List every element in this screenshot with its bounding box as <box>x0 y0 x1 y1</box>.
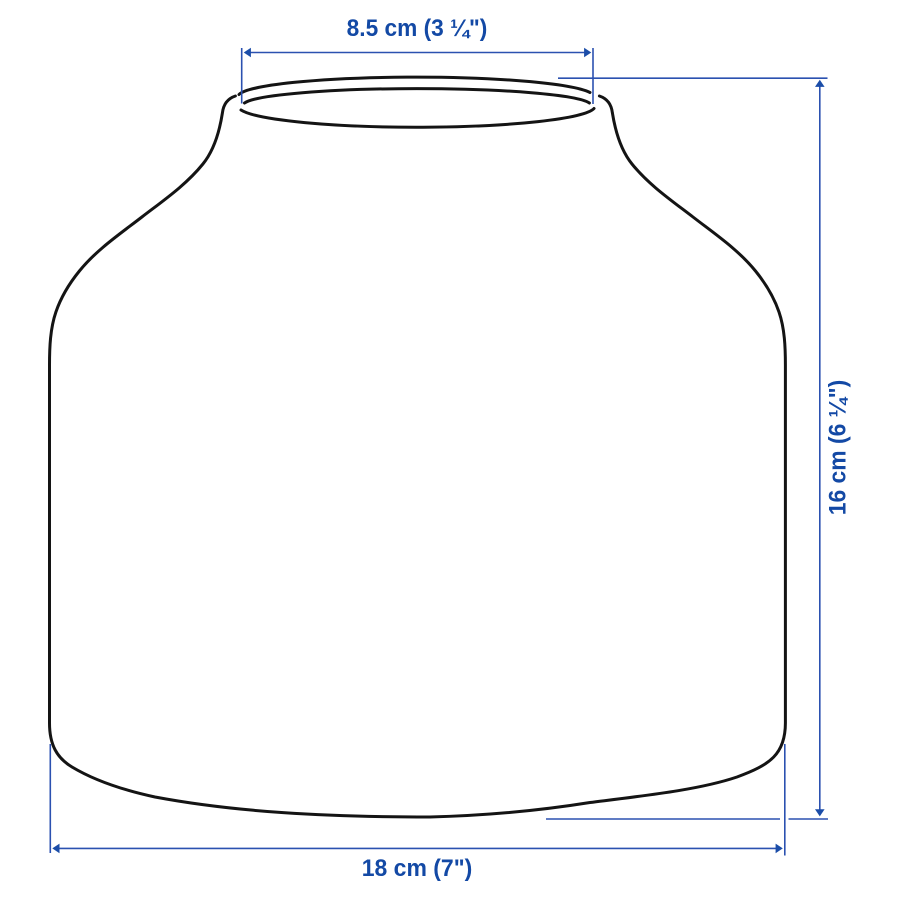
svg-text:16 cm (6 ¼"): 16 cm (6 ¼") <box>824 380 851 516</box>
svg-text:18 cm (7"): 18 cm (7") <box>362 855 473 882</box>
svg-text:8.5 cm (3 ¼"): 8.5 cm (3 ¼") <box>347 15 488 42</box>
